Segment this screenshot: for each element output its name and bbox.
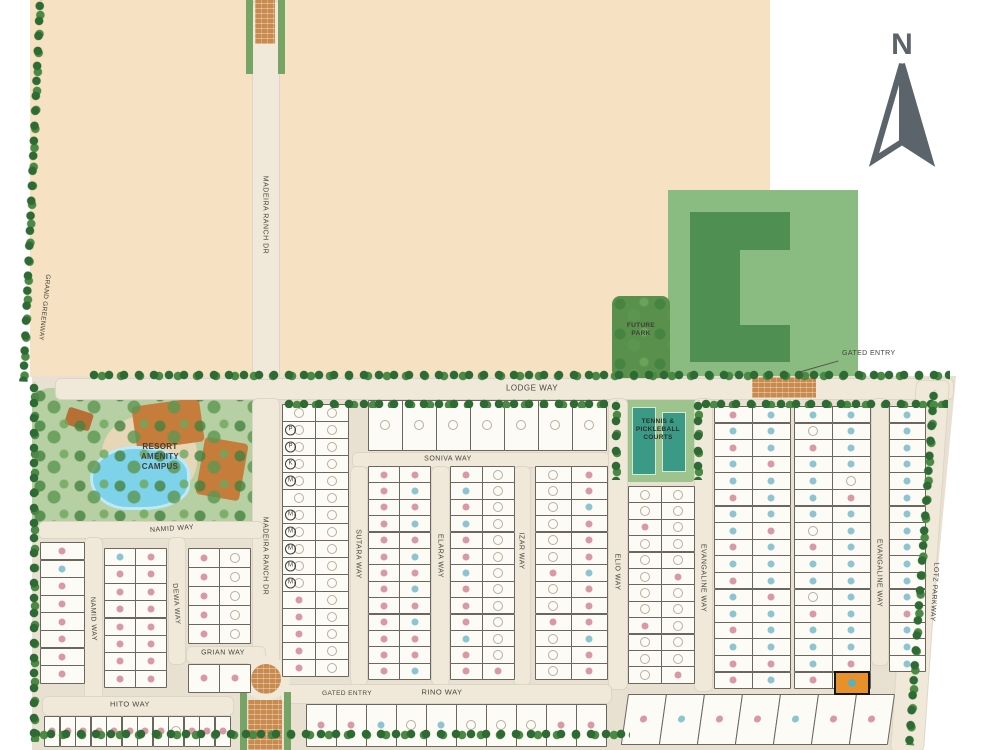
lot[interactable] xyxy=(315,472,349,490)
lot-status-dot xyxy=(463,553,470,560)
lot-status-dot xyxy=(640,654,650,664)
lot[interactable] xyxy=(450,614,483,631)
lot[interactable] xyxy=(482,597,515,614)
lot-status-dot xyxy=(411,586,418,593)
lot[interactable] xyxy=(40,577,85,595)
lot[interactable] xyxy=(482,564,515,581)
lot-status-dot xyxy=(640,604,650,614)
lot[interactable] xyxy=(482,663,515,680)
lot[interactable] xyxy=(714,539,753,556)
lot[interactable] xyxy=(714,672,753,689)
lot[interactable] xyxy=(450,482,483,499)
lot[interactable] xyxy=(135,670,167,688)
lot[interactable] xyxy=(794,638,833,655)
lot[interactable] xyxy=(889,456,926,473)
lot[interactable] xyxy=(450,597,483,614)
road-izar-way xyxy=(513,466,531,686)
lot[interactable] xyxy=(535,548,572,565)
lot[interactable] xyxy=(794,522,833,539)
resort-amenity-campus-label: RESORT AMENITY CAMPUS xyxy=(100,442,220,472)
lot-block-namid-dewa xyxy=(104,548,166,687)
lot[interactable] xyxy=(135,635,167,653)
lot-status-dot xyxy=(673,621,683,631)
lot[interactable] xyxy=(482,482,515,499)
lot-status-dot xyxy=(810,494,817,501)
lot-status-dot xyxy=(548,601,558,611)
entry-median xyxy=(278,0,285,74)
lot[interactable] xyxy=(752,472,791,489)
lot[interactable] xyxy=(368,548,400,565)
street-label-lodge-way: LODGE WAY xyxy=(506,384,558,393)
lot[interactable] xyxy=(399,646,431,663)
lot[interactable] xyxy=(399,663,431,680)
lot[interactable] xyxy=(368,630,400,647)
lot-status-dot xyxy=(730,411,737,418)
lot[interactable] xyxy=(714,555,753,572)
lot-status-dot xyxy=(848,644,855,651)
lot[interactable] xyxy=(104,565,136,583)
lot[interactable] xyxy=(399,597,431,614)
lot[interactable] xyxy=(135,565,167,583)
lot-status-dot xyxy=(550,569,557,576)
lot[interactable] xyxy=(282,659,316,677)
lot[interactable] xyxy=(832,539,871,556)
lot[interactable] xyxy=(714,638,753,655)
lot[interactable] xyxy=(571,597,608,614)
lot[interactable] xyxy=(399,614,431,631)
lot-status-dot xyxy=(673,490,683,500)
lot[interactable] xyxy=(450,564,483,581)
lot[interactable] xyxy=(135,583,167,601)
lot[interactable] xyxy=(282,591,316,609)
lot[interactable] xyxy=(832,572,871,589)
lot-status-dot xyxy=(493,470,503,480)
lot-status-dot xyxy=(641,622,648,629)
lot[interactable] xyxy=(40,630,85,648)
lot[interactable] xyxy=(535,515,572,532)
lot-status-dot xyxy=(730,461,737,468)
lot-letter-badge: M xyxy=(285,543,296,554)
lot[interactable] xyxy=(368,614,400,631)
lot[interactable] xyxy=(219,548,251,568)
lot-status-dot xyxy=(230,591,240,601)
lot[interactable] xyxy=(219,605,251,625)
lot[interactable] xyxy=(752,622,791,639)
lot[interactable] xyxy=(40,612,85,630)
lot[interactable] xyxy=(282,625,316,643)
lot[interactable] xyxy=(832,423,871,440)
lot[interactable] xyxy=(794,605,833,622)
lot[interactable] xyxy=(571,564,608,581)
lot[interactable] xyxy=(628,634,662,651)
lot[interactable] xyxy=(282,642,316,660)
lot[interactable] xyxy=(832,489,871,506)
lot[interactable] xyxy=(628,650,662,667)
lot[interactable] xyxy=(714,522,753,539)
lot[interactable] xyxy=(188,586,220,606)
lot[interactable] xyxy=(450,548,483,565)
lot-status-dot xyxy=(380,619,387,626)
lot-status-dot xyxy=(808,592,818,602)
lot[interactable] xyxy=(794,622,833,639)
lot[interactable] xyxy=(315,642,349,660)
lot[interactable] xyxy=(315,438,349,456)
lot-status-dot xyxy=(586,553,593,560)
lot[interactable] xyxy=(482,614,515,631)
lot[interactable] xyxy=(315,523,349,541)
lot[interactable] xyxy=(752,555,791,572)
lot[interactable] xyxy=(188,624,220,644)
lot[interactable]: M xyxy=(282,574,316,592)
lot[interactable] xyxy=(368,663,400,680)
lot[interactable] xyxy=(219,567,251,587)
lot[interactable] xyxy=(482,515,515,532)
lot[interactable] xyxy=(399,581,431,598)
lot-status-dot xyxy=(327,646,337,656)
lot[interactable] xyxy=(714,572,753,589)
lot[interactable] xyxy=(399,630,431,647)
lot[interactable] xyxy=(535,630,572,647)
lot[interactable] xyxy=(794,406,833,423)
lot[interactable] xyxy=(135,600,167,618)
lot[interactable] xyxy=(661,601,695,618)
lot-status-dot xyxy=(147,554,154,561)
lot[interactable] xyxy=(282,608,316,626)
lot[interactable] xyxy=(794,672,833,689)
lot[interactable] xyxy=(368,564,400,581)
lot[interactable] xyxy=(399,466,431,483)
lot[interactable] xyxy=(368,515,400,532)
lot[interactable] xyxy=(832,555,871,572)
lot[interactable] xyxy=(368,466,400,483)
lot[interactable] xyxy=(219,664,251,693)
lot[interactable] xyxy=(40,665,85,683)
lot[interactable] xyxy=(832,522,871,539)
lot[interactable] xyxy=(832,439,871,456)
lot[interactable] xyxy=(794,589,833,606)
lot[interactable] xyxy=(399,548,431,565)
lot[interactable] xyxy=(571,646,608,663)
lot[interactable] xyxy=(752,655,791,672)
lot-status-dot xyxy=(493,634,503,644)
lot[interactable] xyxy=(450,532,483,549)
lot[interactable] xyxy=(315,557,349,575)
lot-status-dot xyxy=(768,627,775,634)
lot[interactable] xyxy=(104,652,136,670)
lot[interactable] xyxy=(889,439,926,456)
lot[interactable] xyxy=(794,555,833,572)
lot[interactable] xyxy=(628,601,662,618)
lot[interactable] xyxy=(714,655,753,672)
lot[interactable] xyxy=(752,506,791,523)
lot[interactable] xyxy=(661,502,695,519)
lot[interactable] xyxy=(752,539,791,556)
lot[interactable] xyxy=(315,421,349,439)
lot[interactable] xyxy=(135,618,167,636)
lot[interactable] xyxy=(315,455,349,473)
lot[interactable] xyxy=(399,515,431,532)
lot[interactable] xyxy=(450,646,483,663)
lot[interactable] xyxy=(832,456,871,473)
lot[interactable] xyxy=(794,489,833,506)
lot[interactable] xyxy=(315,506,349,524)
lot[interactable] xyxy=(752,605,791,622)
lot[interactable] xyxy=(535,614,572,631)
lot[interactable] xyxy=(315,608,349,626)
lot-status-dot xyxy=(586,537,593,544)
lot[interactable] xyxy=(315,659,349,677)
lot[interactable] xyxy=(282,489,316,507)
lot[interactable] xyxy=(661,666,695,683)
lot[interactable] xyxy=(482,466,515,483)
lot[interactable] xyxy=(135,548,167,566)
lot[interactable] xyxy=(661,584,695,601)
lot[interactable] xyxy=(571,663,608,680)
lot[interactable] xyxy=(794,439,833,456)
lot-status-dot xyxy=(586,487,593,494)
lot-status-dot xyxy=(810,677,817,684)
lot[interactable]: M xyxy=(282,506,316,524)
lot-status-dot xyxy=(848,561,855,568)
lot[interactable]: M xyxy=(282,523,316,541)
lot[interactable] xyxy=(832,605,871,622)
lot[interactable] xyxy=(628,666,662,683)
lot[interactable] xyxy=(714,622,753,639)
lot[interactable] xyxy=(752,638,791,655)
lot[interactable]: M xyxy=(282,472,316,490)
lot-status-dot xyxy=(463,504,470,511)
lot[interactable] xyxy=(628,568,662,585)
lot[interactable] xyxy=(482,581,515,598)
lot[interactable] xyxy=(482,548,515,565)
lot[interactable] xyxy=(535,466,572,483)
lot[interactable] xyxy=(571,482,608,499)
lot[interactable] xyxy=(571,466,608,483)
lot[interactable] xyxy=(752,423,791,440)
lot-status-dot xyxy=(147,606,154,613)
lot[interactable] xyxy=(628,552,662,569)
lot[interactable] xyxy=(794,456,833,473)
lot[interactable]: P xyxy=(282,421,316,439)
lot[interactable] xyxy=(219,624,251,644)
lot[interactable] xyxy=(135,652,167,670)
lot[interactable] xyxy=(571,630,608,647)
lot[interactable] xyxy=(368,581,400,598)
lot-status-dot xyxy=(848,444,855,451)
lot[interactable] xyxy=(661,519,695,536)
lot[interactable] xyxy=(628,519,662,536)
lot[interactable] xyxy=(794,423,833,440)
lot[interactable] xyxy=(661,552,695,569)
lot[interactable] xyxy=(482,646,515,663)
lot-block-a-madeira-sutara: PPKMMMMMM xyxy=(282,404,348,676)
lot-status-dot xyxy=(380,471,387,478)
lot[interactable] xyxy=(535,663,572,680)
lot-status-dot xyxy=(411,619,418,626)
lot[interactable] xyxy=(104,670,136,688)
lot[interactable] xyxy=(661,486,695,503)
lot[interactable] xyxy=(104,548,136,566)
lot-status-dot xyxy=(586,668,593,675)
lot[interactable] xyxy=(571,499,608,516)
lot[interactable] xyxy=(794,539,833,556)
lot[interactable] xyxy=(832,655,871,672)
lot[interactable] xyxy=(661,650,695,667)
lot-status-dot xyxy=(904,461,911,468)
lot[interactable]: K xyxy=(282,455,316,473)
lot[interactable] xyxy=(219,586,251,606)
lot[interactable] xyxy=(368,646,400,663)
lot[interactable] xyxy=(399,482,431,499)
lot[interactable]: M xyxy=(282,540,316,558)
lot[interactable] xyxy=(628,486,662,503)
lot[interactable] xyxy=(889,406,926,423)
lot-status-dot xyxy=(295,630,302,637)
lot[interactable] xyxy=(794,572,833,589)
lot[interactable] xyxy=(188,664,220,693)
lot[interactable] xyxy=(752,489,791,506)
lot[interactable] xyxy=(849,694,895,745)
lot-status-dot xyxy=(730,561,737,568)
lot[interactable] xyxy=(368,532,400,549)
lot[interactable] xyxy=(368,482,400,499)
lot[interactable] xyxy=(889,423,926,440)
lot[interactable] xyxy=(752,589,791,606)
lot[interactable] xyxy=(482,532,515,549)
lot[interactable] xyxy=(832,472,871,489)
lot[interactable] xyxy=(571,548,608,565)
lot[interactable] xyxy=(714,423,753,440)
lot[interactable] xyxy=(752,406,791,423)
lot[interactable] xyxy=(661,634,695,651)
lot[interactable] xyxy=(832,638,871,655)
lot[interactable] xyxy=(714,406,753,423)
lot[interactable] xyxy=(315,540,349,558)
lot[interactable] xyxy=(368,499,400,516)
lot[interactable] xyxy=(188,548,220,568)
lot[interactable] xyxy=(832,622,871,639)
lot[interactable] xyxy=(315,574,349,592)
lot[interactable] xyxy=(104,618,136,636)
lot-status-dot xyxy=(673,522,683,532)
lot[interactable] xyxy=(571,515,608,532)
lot[interactable] xyxy=(104,583,136,601)
lot-status-dot xyxy=(230,553,240,563)
treeline xyxy=(283,398,608,408)
lot[interactable] xyxy=(832,589,871,606)
lot[interactable] xyxy=(752,572,791,589)
lot[interactable] xyxy=(752,522,791,539)
lot-status-dot xyxy=(116,554,123,561)
lot-status-dot xyxy=(147,641,154,648)
lot[interactable] xyxy=(752,439,791,456)
lot[interactable] xyxy=(399,532,431,549)
lot-status-dot xyxy=(673,539,683,549)
lot[interactable] xyxy=(832,406,871,423)
lot[interactable] xyxy=(104,635,136,653)
lot[interactable] xyxy=(188,567,220,587)
lot[interactable] xyxy=(714,472,753,489)
lot[interactable] xyxy=(40,560,85,578)
lot[interactable] xyxy=(535,581,572,598)
lot-status-dot xyxy=(640,490,650,500)
lot-status-dot xyxy=(641,524,648,531)
lot[interactable] xyxy=(714,489,753,506)
lot[interactable] xyxy=(628,617,662,634)
lot-status-dot xyxy=(116,571,123,578)
lot[interactable]: M xyxy=(282,557,316,575)
lot[interactable] xyxy=(714,605,753,622)
lot[interactable] xyxy=(399,564,431,581)
lot[interactable] xyxy=(482,499,515,516)
lot-status-dot xyxy=(810,561,817,568)
lot[interactable] xyxy=(188,605,220,625)
lot[interactable] xyxy=(628,502,662,519)
lot[interactable] xyxy=(535,482,572,499)
lot[interactable] xyxy=(628,584,662,601)
lot[interactable] xyxy=(794,655,833,672)
lot[interactable] xyxy=(315,625,349,643)
lot-block-elara-izar xyxy=(450,466,514,679)
lot[interactable] xyxy=(315,489,349,507)
lot[interactable] xyxy=(535,499,572,516)
lot-status-dot xyxy=(730,610,737,617)
lot[interactable] xyxy=(450,630,483,647)
lot[interactable] xyxy=(752,456,791,473)
lot-status-dot xyxy=(673,637,683,647)
lot[interactable] xyxy=(482,630,515,647)
lot[interactable] xyxy=(794,506,833,523)
lot[interactable] xyxy=(40,542,85,560)
lot[interactable] xyxy=(661,568,695,585)
lot[interactable] xyxy=(714,589,753,606)
lot[interactable] xyxy=(661,617,695,634)
selected-lot[interactable] xyxy=(834,671,870,695)
lot[interactable] xyxy=(661,535,695,552)
lot[interactable] xyxy=(571,614,608,631)
lot[interactable] xyxy=(535,646,572,663)
lot[interactable] xyxy=(40,648,85,666)
lot[interactable] xyxy=(450,499,483,516)
lot[interactable] xyxy=(571,581,608,598)
lot[interactable] xyxy=(315,591,349,609)
lot[interactable] xyxy=(399,499,431,516)
lot[interactable] xyxy=(450,515,483,532)
lot-status-dot xyxy=(640,588,650,598)
lot[interactable] xyxy=(714,439,753,456)
lot[interactable] xyxy=(794,472,833,489)
lot[interactable] xyxy=(450,581,483,598)
lot[interactable] xyxy=(752,672,791,689)
lot[interactable] xyxy=(535,597,572,614)
lot[interactable] xyxy=(714,456,753,473)
lot[interactable] xyxy=(714,506,753,523)
lot[interactable] xyxy=(450,466,483,483)
lot[interactable] xyxy=(40,595,85,613)
lot[interactable] xyxy=(450,663,483,680)
lot[interactable] xyxy=(628,535,662,552)
lot[interactable] xyxy=(104,600,136,618)
lot[interactable] xyxy=(832,506,871,523)
lot[interactable] xyxy=(535,532,572,549)
lot-status-dot xyxy=(411,635,418,642)
lot[interactable] xyxy=(535,564,572,581)
lot[interactable] xyxy=(368,597,400,614)
lot-status-dot xyxy=(414,420,424,430)
lot[interactable] xyxy=(571,532,608,549)
lot-status-dot xyxy=(327,612,337,622)
lot[interactable]: P xyxy=(282,438,316,456)
